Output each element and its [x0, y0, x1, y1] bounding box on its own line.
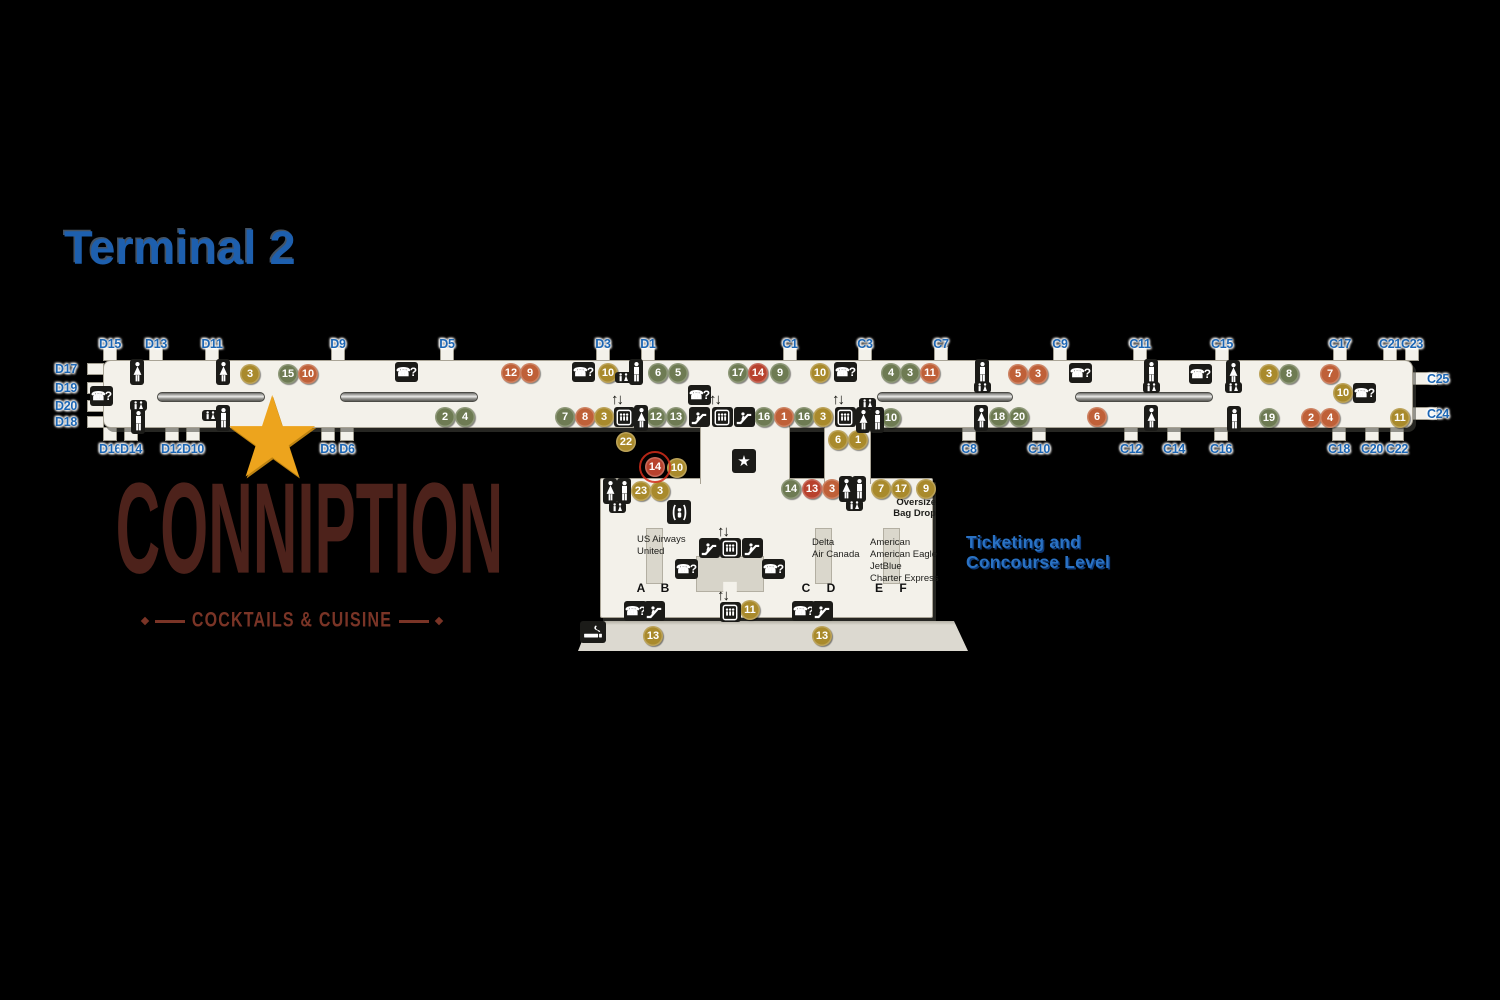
- amenity-badge: 8: [575, 407, 595, 427]
- escalator-icon: [734, 407, 755, 427]
- amenity-badge: 12: [501, 363, 521, 383]
- telephone-info-icon: ☎?: [688, 385, 711, 405]
- amenity-badge: 19: [1259, 408, 1279, 428]
- gate-label: C22: [1386, 442, 1408, 456]
- family-restroom-icon: [1143, 382, 1160, 393]
- amenity-badge: 11: [920, 363, 940, 383]
- elevator-icon: [720, 602, 741, 622]
- amenity-badge: 2: [435, 407, 455, 427]
- gate-label: D1: [640, 337, 655, 351]
- escalator-icon: [742, 538, 763, 558]
- mens-restroom-icon: [131, 408, 145, 434]
- family-restroom-icon: [130, 400, 147, 411]
- gate-label: D12: [161, 442, 183, 456]
- amenity-badge: 10: [810, 363, 830, 383]
- gate-label: D5: [439, 337, 454, 351]
- tagline-diamond: [435, 617, 443, 625]
- jet-bridge-stub: [1032, 427, 1046, 441]
- door-label-f: F: [899, 581, 906, 595]
- you-are-here-star-icon: ★: [222, 382, 334, 494]
- highlight-ring: [639, 451, 671, 483]
- amenity-badge: 5: [1008, 364, 1028, 384]
- updown-arrows-icon: ↑↓: [832, 392, 858, 408]
- amenity-badge: 3: [650, 481, 670, 501]
- womens-restroom-icon: [634, 405, 648, 431]
- gate-label: D3: [595, 337, 610, 351]
- amenity-badge: 13: [666, 407, 686, 427]
- moving-walkway: [877, 392, 1013, 402]
- curbside-sidewalk: [578, 621, 968, 651]
- gate-label: D16: [99, 442, 121, 456]
- airline-line: American: [870, 537, 939, 549]
- door-label-b: B: [661, 581, 670, 595]
- door-label-c: C: [802, 581, 811, 595]
- level-caption: Ticketing and Concourse Level: [966, 533, 1110, 573]
- amenity-badge: 16: [754, 407, 774, 427]
- telephone-info-icon: ☎?: [395, 362, 418, 382]
- mens-restroom-icon: [1227, 406, 1241, 432]
- amenity-badge: 1: [848, 430, 868, 450]
- amenity-badge: 23: [631, 481, 651, 501]
- tagline-diamond: [141, 617, 149, 625]
- amenity-badge: 13: [643, 626, 663, 646]
- gate-label: C9: [1052, 337, 1067, 351]
- mens-restroom-icon: [852, 476, 866, 502]
- gate-label: C15: [1211, 337, 1233, 351]
- gate-label: D20: [55, 399, 77, 413]
- mens-restroom-icon: [617, 478, 631, 504]
- gate-label: D18: [55, 415, 77, 429]
- location-marker-icon: ★: [732, 449, 756, 473]
- amenity-badge: 9: [520, 363, 540, 383]
- amenity-badge: 5: [668, 363, 688, 383]
- amenity-badge: 2: [1301, 408, 1321, 428]
- womens-restroom-icon: [974, 405, 988, 431]
- gate-label: C3: [857, 337, 872, 351]
- amenity-badge: 6: [1087, 407, 1107, 427]
- updown-arrows-icon: ↑↓: [717, 524, 743, 540]
- escalator-icon: [699, 538, 720, 558]
- amenity-badge: 7: [1320, 364, 1340, 384]
- gate-label: D19: [55, 381, 77, 395]
- tagline-rule: [155, 620, 185, 623]
- gate-label: C11: [1129, 337, 1150, 351]
- airline-line: US Airways: [637, 534, 686, 546]
- amenity-badge: 13: [802, 479, 822, 499]
- gate-label: D10: [182, 442, 204, 456]
- terminal-map: Terminal 2 US Airways United Delta Air C…: [0, 0, 1500, 1000]
- amenity-badge: 17: [728, 363, 748, 383]
- jet-bridge-stub: [1214, 427, 1228, 441]
- moving-walkway: [340, 392, 478, 402]
- amenity-badge: 10: [1333, 383, 1353, 403]
- amenity-badge: 14: [781, 479, 801, 499]
- amenity-badge: 22: [616, 432, 636, 452]
- amenity-badge: 6: [828, 430, 848, 450]
- gate-label: D15: [99, 337, 121, 351]
- moving-walkway: [1075, 392, 1213, 402]
- amenity-badge: 3: [594, 407, 614, 427]
- amenity-badge: 14: [748, 363, 768, 383]
- nursing-room-icon: [667, 500, 691, 524]
- amenity-badge: 3: [900, 363, 920, 383]
- escalator-icon: [689, 407, 710, 427]
- jet-bridge-stub: [186, 427, 200, 441]
- elevator-icon: [614, 407, 635, 427]
- amenity-badge: 16: [794, 407, 814, 427]
- elevator-icon: [720, 538, 741, 558]
- door-label-d: D: [827, 581, 836, 595]
- amenity-badge: 1: [774, 407, 794, 427]
- amenity-badge: 17: [891, 479, 911, 499]
- telephone-info-icon: ☎?: [834, 362, 857, 382]
- womens-restroom-icon: [603, 478, 617, 504]
- amenity-badge: 9: [770, 363, 790, 383]
- escalator-icon: [644, 601, 665, 621]
- telephone-info-icon: ☎?: [1353, 383, 1376, 403]
- womens-restroom-icon: [856, 407, 870, 433]
- jet-bridge-stub: [87, 416, 104, 428]
- mens-restroom-icon: [870, 407, 884, 433]
- airline-label-us-airways: US Airways United: [637, 534, 686, 558]
- amenity-badge: 3: [1028, 364, 1048, 384]
- womens-restroom-icon: [130, 359, 144, 385]
- airline-line: JetBlue: [870, 561, 939, 573]
- amenity-badge: 12: [646, 407, 666, 427]
- airline-line: Delta: [812, 537, 860, 549]
- oversize-bag-drop-label: Oversize Bag Drop: [874, 497, 936, 520]
- level-caption-line: Ticketing and: [966, 533, 1110, 553]
- gate-label: C10: [1028, 442, 1050, 456]
- telephone-info-icon: ☎?: [762, 559, 785, 579]
- tagline-text: COCKTAILS & CUISINE: [192, 609, 392, 633]
- amenity-badge: 18: [989, 407, 1009, 427]
- gate-label: D14: [120, 442, 142, 456]
- gate-label: D17: [55, 362, 77, 376]
- family-restroom-icon: [846, 500, 863, 511]
- gate-label: C1: [782, 337, 797, 351]
- amenity-badge: 4: [1320, 408, 1340, 428]
- gate-label: C24: [1427, 407, 1449, 421]
- door-label-a: A: [637, 581, 646, 595]
- amenity-badge: 8: [1279, 364, 1299, 384]
- airline-line: American Eagle: [870, 549, 939, 561]
- door-label-e: E: [875, 581, 883, 595]
- updown-arrows-icon: ↑↓: [709, 392, 735, 408]
- level-caption-line: Concourse Level: [966, 553, 1110, 573]
- telephone-info-icon: ☎?: [90, 386, 113, 406]
- gate-label: C8: [961, 442, 976, 456]
- jet-bridge-stub: [1365, 427, 1379, 441]
- smoking-area-icon: [580, 621, 606, 643]
- airline-line: Air Canada: [812, 549, 860, 561]
- gate-label: C12: [1120, 442, 1142, 456]
- family-restroom-icon: [615, 372, 632, 383]
- telephone-info-icon: ☎?: [572, 362, 595, 382]
- gate-label: C17: [1329, 337, 1351, 351]
- gate-label: D11: [201, 337, 222, 351]
- amenity-badge: 9: [916, 479, 936, 499]
- escalator-icon: [812, 601, 833, 621]
- airline-label-delta: Delta Air Canada: [812, 537, 860, 561]
- jet-bridge-stub: [1124, 427, 1138, 441]
- amenity-badge: 4: [455, 407, 475, 427]
- gate-label: C25: [1427, 372, 1449, 386]
- family-restroom-icon: [974, 382, 991, 393]
- tagline-rule: [399, 620, 429, 623]
- family-restroom-icon: [1225, 382, 1242, 393]
- gate-label: C7: [933, 337, 948, 351]
- gate-label: C16: [1210, 442, 1232, 456]
- jet-bridge-stub: [1332, 427, 1346, 441]
- elevator-icon: [835, 407, 856, 427]
- womens-restroom-icon: [1144, 405, 1158, 431]
- telephone-info-icon: ☎?: [675, 559, 698, 579]
- womens-restroom-icon: [839, 476, 853, 502]
- gate-label: C18: [1328, 442, 1350, 456]
- page-title: Terminal 2: [64, 220, 296, 275]
- amenity-badge: 7: [555, 407, 575, 427]
- gate-label: C23: [1401, 337, 1423, 351]
- jet-bridge-stub: [1167, 427, 1181, 441]
- amenity-badge: 6: [648, 363, 668, 383]
- elevator-icon: [712, 407, 733, 427]
- jet-bridge-stub: [1390, 427, 1404, 441]
- gate-label: C20: [1361, 442, 1383, 456]
- jet-bridge-stub: [340, 427, 354, 441]
- family-restroom-icon: [609, 502, 626, 513]
- gate-label: D6: [339, 442, 354, 456]
- telephone-info-icon: ☎?: [1069, 363, 1092, 383]
- family-restroom-icon: [859, 398, 876, 409]
- amenity-badge: 10: [881, 408, 901, 428]
- updown-arrows-icon: ↑↓: [717, 588, 743, 604]
- amenity-badge: 7: [871, 479, 891, 499]
- conniption-logo-tagline: COCKTAILS & CUISINE: [112, 612, 472, 630]
- amenity-badge: 20: [1009, 407, 1029, 427]
- oversize-line: Bag Drop: [874, 508, 936, 519]
- amenity-badge: 13: [812, 626, 832, 646]
- airline-line: United: [637, 546, 686, 558]
- amenity-badge: 11: [1390, 408, 1410, 428]
- gate-label: C14: [1163, 442, 1185, 456]
- amenity-badge: 3: [813, 407, 833, 427]
- jet-bridge-stub: [87, 363, 104, 375]
- family-restroom-icon: [202, 410, 219, 421]
- amenity-badge: 3: [1259, 364, 1279, 384]
- gate-label: D9: [330, 337, 345, 351]
- jet-bridge-stub: [103, 427, 117, 441]
- updown-arrows-icon: ↑↓: [611, 392, 637, 408]
- airline-label-american: American American Eagle JetBlue Charter …: [870, 537, 939, 585]
- amenity-badge: 4: [881, 363, 901, 383]
- gate-label: D13: [145, 337, 167, 351]
- jet-bridge-stub: [165, 427, 179, 441]
- gate-label: C21: [1379, 337, 1401, 351]
- telephone-info-icon: ☎?: [1189, 364, 1212, 384]
- amenity-badge: 11: [740, 600, 760, 620]
